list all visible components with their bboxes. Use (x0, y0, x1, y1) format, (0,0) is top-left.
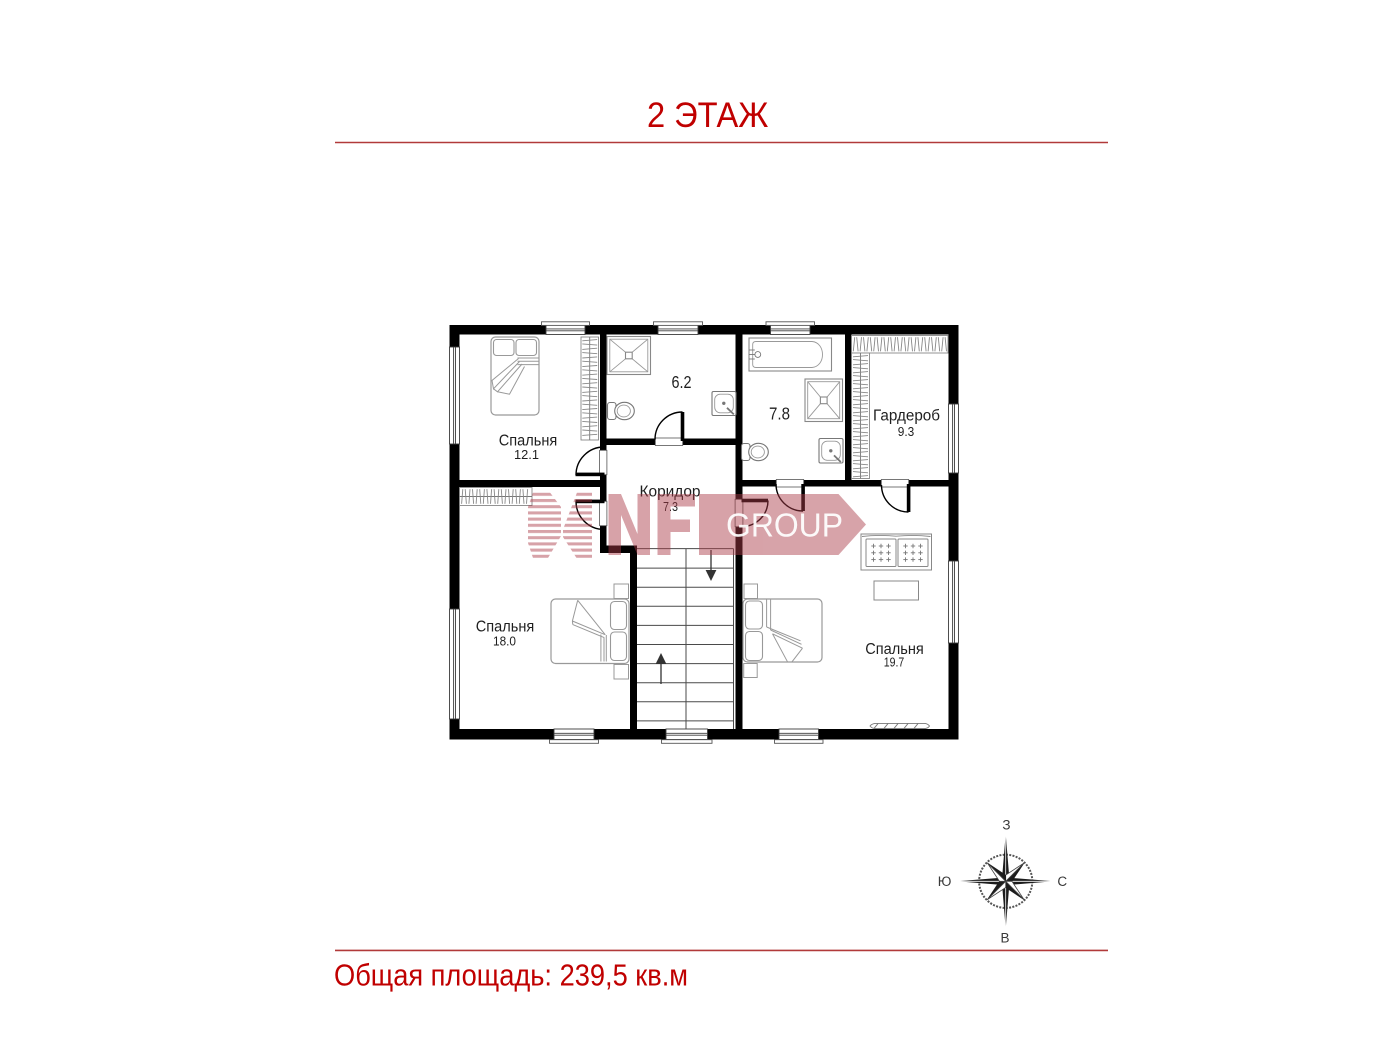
svg-text:18.0: 18.0 (493, 633, 516, 648)
svg-text:З: З (1002, 817, 1010, 832)
svg-text:Гардероб: Гардероб (873, 408, 940, 425)
svg-text:В: В (1000, 931, 1009, 946)
svg-text:2 ЭТАЖ: 2 ЭТАЖ (647, 96, 769, 135)
svg-text:Ю: Ю (938, 874, 952, 889)
svg-text:GROUP: GROUP (726, 507, 843, 544)
svg-text:С: С (1057, 874, 1067, 889)
svg-text:7.8: 7.8 (769, 403, 790, 423)
svg-text:19.7: 19.7 (884, 655, 905, 670)
svg-text:Общая площадь: 239,5 кв.м: Общая площадь: 239,5 кв.м (334, 958, 688, 993)
svg-text:9.3: 9.3 (898, 424, 915, 439)
svg-text:12.1: 12.1 (514, 447, 539, 462)
svg-text:6.2: 6.2 (672, 372, 692, 392)
